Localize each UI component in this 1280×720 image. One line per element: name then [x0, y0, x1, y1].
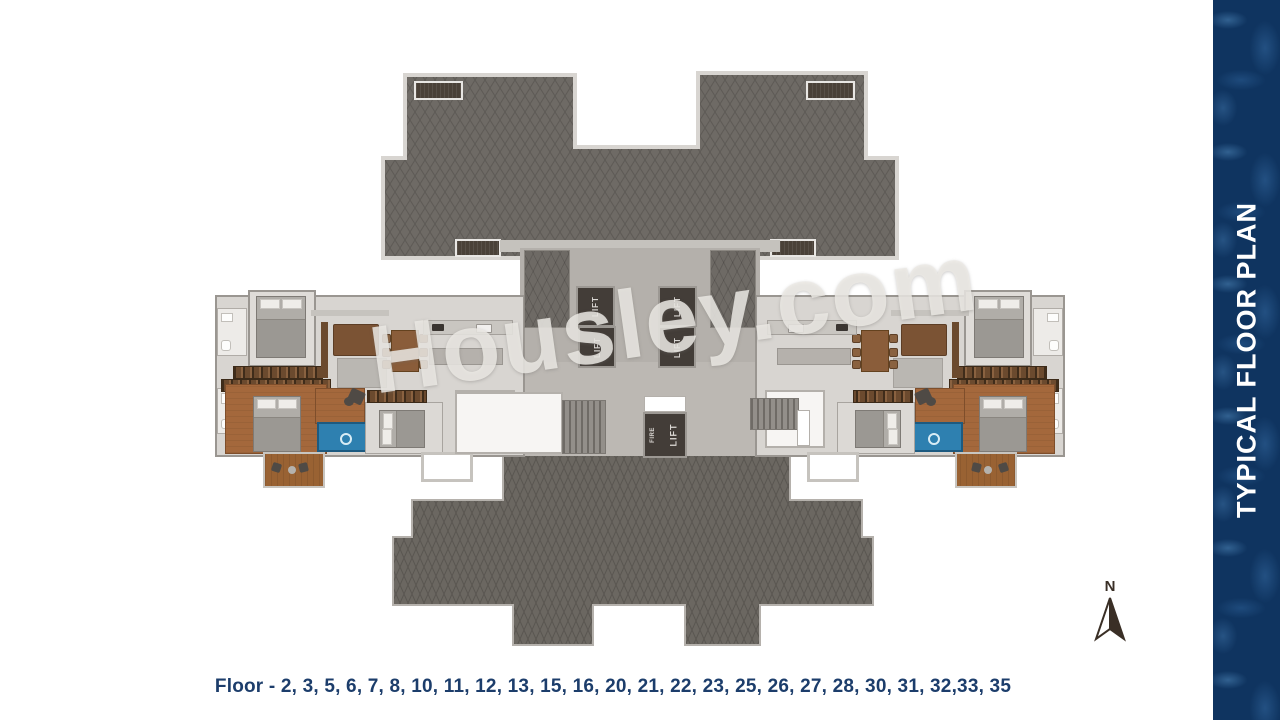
tv-unit — [321, 322, 328, 378]
pillow — [1004, 399, 1023, 409]
dining-chair — [889, 360, 898, 369]
lift-label: LIFT — [592, 337, 601, 358]
service-balcony — [807, 452, 859, 482]
open-void — [455, 392, 563, 454]
deck-chair — [298, 462, 309, 473]
tv-unit — [952, 322, 959, 378]
fire-lift-label-line2: LIFT — [669, 424, 679, 447]
dining-chair — [852, 334, 861, 343]
side-banner: TYPICAL FLOOR PLAN — [1213, 0, 1280, 720]
blanket — [856, 411, 884, 447]
deck-table — [288, 466, 296, 474]
living-rug — [893, 358, 943, 388]
bed — [979, 396, 1027, 452]
lift-label: LIFT — [672, 337, 681, 358]
stove — [432, 324, 444, 331]
dining-chair — [419, 360, 428, 369]
lift-shaft: LIFT — [658, 326, 696, 368]
north-arrow-icon — [1092, 596, 1128, 642]
north-compass: N — [1088, 578, 1132, 647]
lift-shaft: LIFT — [576, 286, 615, 327]
staircase-left — [562, 400, 606, 454]
balcony-deck — [263, 452, 325, 488]
bathroom — [1033, 308, 1063, 356]
floor-caption: Floor - 2, 3, 5, 6, 7, 8, 10, 11, 12, 13… — [0, 676, 1226, 698]
dining-table — [861, 330, 889, 372]
wardrobe — [367, 390, 427, 403]
washbasin — [221, 313, 233, 322]
stove — [836, 324, 848, 331]
bed — [855, 410, 901, 448]
wardrobe — [233, 366, 323, 379]
living-rug — [337, 358, 387, 388]
dining-chair — [889, 348, 898, 357]
deck-chair — [998, 462, 1009, 473]
dining-chair — [382, 360, 391, 369]
staircase-right — [750, 398, 799, 430]
kitchen-counter — [423, 320, 513, 335]
pillow — [383, 413, 393, 429]
bed — [256, 296, 306, 358]
lift-shaft: LIFT — [658, 286, 697, 327]
kitchen-island — [429, 348, 503, 365]
dining-chair — [852, 360, 861, 369]
deck-table — [984, 466, 992, 474]
pool-ring — [928, 433, 940, 445]
core-roof-patch — [524, 250, 570, 328]
toilet — [221, 340, 231, 351]
lift-shaft: LIFT — [578, 326, 616, 368]
roof-planter — [455, 239, 501, 257]
plunge-pool — [913, 422, 963, 452]
core-roof-patch — [710, 250, 756, 328]
floor-plan-page: LIFT LIFT LIFT LIFT FIRE LIFT — [0, 0, 1280, 720]
fire-lift-landing — [644, 396, 686, 412]
dining-table — [391, 330, 419, 372]
deck-chair — [971, 462, 982, 473]
service-balcony — [421, 452, 473, 482]
pillow — [282, 299, 302, 309]
blanket — [396, 411, 424, 447]
fire-lift-shaft: FIRE LIFT — [643, 412, 687, 458]
sink — [476, 324, 492, 333]
plunge-pool — [317, 422, 367, 452]
sofa — [901, 324, 947, 356]
washbasin — [1047, 313, 1059, 322]
bed — [379, 410, 425, 448]
pillow — [888, 429, 898, 445]
dining-chair — [419, 348, 428, 357]
dining-chair — [382, 348, 391, 357]
roof-planter — [414, 81, 463, 100]
pillow — [257, 399, 276, 409]
dining-chair — [419, 334, 428, 343]
dining-chair — [852, 348, 861, 357]
roof-top — [383, 73, 897, 258]
balcony-deck — [955, 452, 1017, 488]
banner-title: TYPICAL FLOOR PLAN — [1231, 202, 1262, 518]
toilet — [1049, 340, 1059, 351]
fire-lift-label-line1: FIRE — [650, 427, 656, 443]
lift-label: LIFT — [673, 296, 682, 317]
sofa — [333, 324, 379, 356]
pillow — [978, 299, 998, 309]
blanket — [980, 417, 1026, 451]
bed — [974, 296, 1024, 358]
apartment-left — [215, 290, 525, 490]
roof-planter — [806, 81, 855, 100]
pillow — [278, 399, 297, 409]
wardrobe — [957, 366, 1047, 379]
bed — [253, 396, 301, 452]
apartment-right — [755, 290, 1065, 490]
pillow — [983, 399, 1002, 409]
pillow — [260, 299, 280, 309]
north-label: N — [1088, 578, 1132, 595]
pool-ring — [340, 433, 352, 445]
kitchen-island — [777, 348, 851, 365]
wardrobe — [853, 390, 913, 403]
dining-chair — [889, 334, 898, 343]
pillow — [1000, 299, 1020, 309]
living-ledge — [891, 310, 969, 316]
dining-chair — [382, 334, 391, 343]
living-ledge — [311, 310, 389, 316]
deck-chair — [271, 462, 282, 473]
pillow — [382, 429, 392, 445]
bathroom — [217, 308, 247, 356]
corridor-door — [797, 410, 810, 446]
sink — [788, 324, 804, 333]
pillow — [887, 413, 897, 429]
lift-label: LIFT — [591, 296, 600, 317]
kitchen-counter — [767, 320, 857, 335]
blanket — [975, 319, 1023, 357]
blanket — [254, 417, 300, 451]
blanket — [257, 319, 305, 357]
